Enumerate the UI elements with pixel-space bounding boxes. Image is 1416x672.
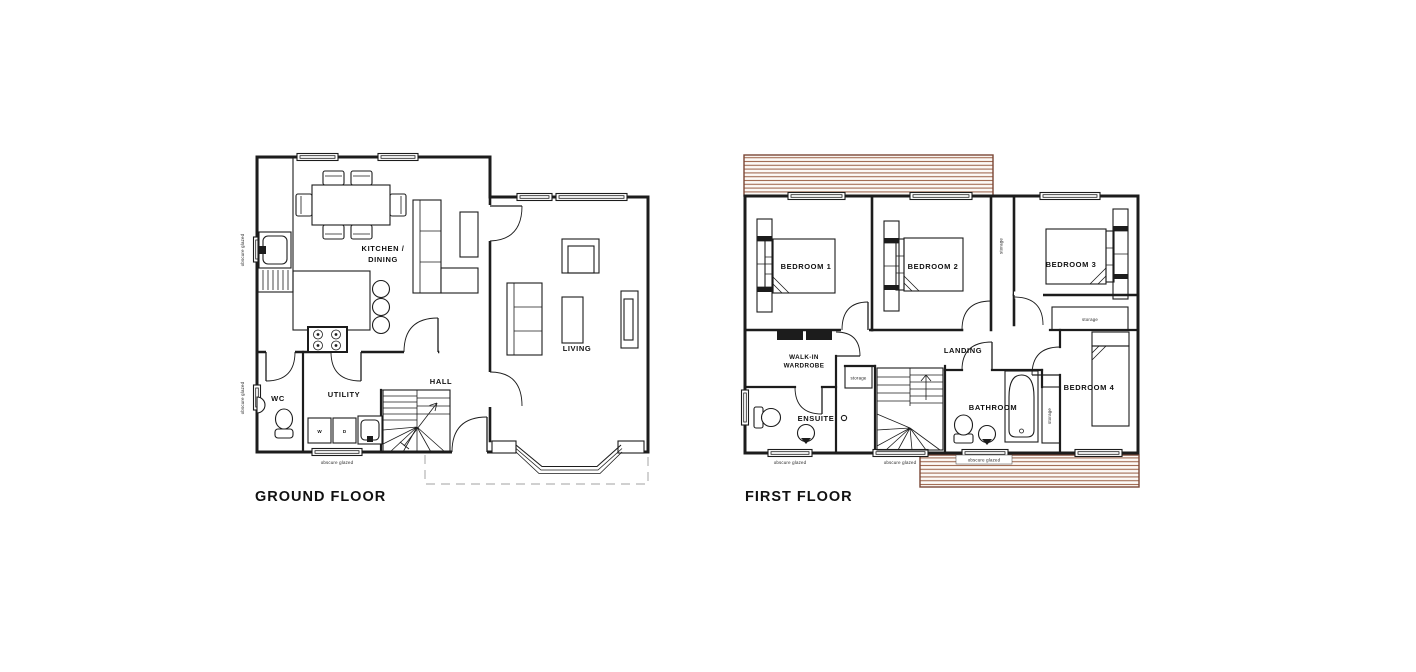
bedroom3-bed bbox=[1046, 209, 1128, 299]
wc-toilet bbox=[275, 409, 293, 438]
landing-label: LANDING bbox=[944, 346, 982, 355]
window bbox=[556, 194, 627, 201]
dining-table bbox=[296, 171, 406, 239]
storage-closet-bed3: storage bbox=[1052, 307, 1128, 330]
living-label: LIVING bbox=[563, 344, 592, 353]
obscure-glazed-note: obscure glazed bbox=[774, 460, 807, 465]
bedroom3-door bbox=[1014, 295, 1043, 325]
ground-floor-interior-walls bbox=[257, 197, 490, 452]
kitchen-sink bbox=[258, 232, 291, 290]
fireplace bbox=[621, 291, 638, 348]
wc-label: WC bbox=[271, 394, 285, 403]
living-sofa bbox=[507, 283, 542, 355]
utility-label: UTILITY bbox=[328, 390, 361, 399]
obscure-glazed-note: obscure glazed bbox=[240, 381, 245, 414]
window-obscure-glazed bbox=[742, 390, 749, 425]
bedroom1-label: BEDROOM 1 bbox=[781, 262, 832, 271]
kitchen-dining-label: KITCHEN / bbox=[362, 244, 405, 253]
living-armchair bbox=[562, 239, 599, 273]
bedroom2-label: BEDROOM 2 bbox=[908, 262, 959, 271]
bathroom-label: BATHROOM bbox=[969, 403, 1017, 412]
obscure-glazed-note: obscure glazed bbox=[884, 460, 917, 465]
window bbox=[910, 193, 972, 200]
first-floor-plan: storage storage storage storage bbox=[742, 155, 1140, 505]
coffee-table bbox=[562, 297, 583, 343]
window bbox=[517, 194, 552, 201]
window bbox=[1040, 193, 1100, 200]
roof-area-top bbox=[744, 155, 993, 196]
ground-floor-doors bbox=[266, 206, 522, 452]
kitchen-dining-label-2: DINING bbox=[368, 255, 398, 264]
front-door bbox=[452, 417, 487, 452]
wc-basin bbox=[257, 397, 265, 413]
kitchen-living-door bbox=[490, 206, 522, 241]
bay-window bbox=[492, 441, 644, 474]
bathroom-basin bbox=[979, 426, 996, 446]
ensuite-label: ENSUITE bbox=[798, 414, 835, 423]
window-obscure-glazed bbox=[312, 449, 362, 456]
bar-stools bbox=[373, 281, 390, 334]
svg-text:storage: storage bbox=[999, 238, 1004, 254]
washer-label: W bbox=[317, 429, 322, 434]
storage-closet-landing: storage bbox=[845, 366, 872, 388]
storage-closet-between-bedrooms: storage bbox=[999, 238, 1004, 254]
window bbox=[378, 154, 418, 161]
kitchen-sofa bbox=[413, 200, 478, 293]
bedroom2-door bbox=[962, 301, 991, 330]
wc-door bbox=[266, 352, 295, 381]
ensuite-door bbox=[795, 387, 822, 414]
roof-area-bottom bbox=[920, 455, 1139, 487]
window-obscure-glazed bbox=[768, 450, 812, 457]
ground-floor-staircase bbox=[383, 390, 450, 452]
kitchen-door bbox=[404, 318, 438, 352]
svg-text:storage: storage bbox=[1082, 317, 1098, 322]
hall-living-door bbox=[490, 372, 522, 406]
obscure-glazed-note: obscure glazed bbox=[321, 460, 354, 465]
bedroom3-label: BEDROOM 3 bbox=[1046, 260, 1097, 269]
utility-door bbox=[331, 352, 361, 381]
floor-plans-canvas: W D KITCHEN / DINING LIVING HALL UTILITY… bbox=[0, 0, 1416, 672]
window bbox=[1075, 450, 1122, 457]
ensuite-basin bbox=[798, 425, 815, 445]
walk-in-wardrobe-door bbox=[836, 332, 860, 356]
ground-floor-title: GROUND FLOOR bbox=[255, 489, 386, 505]
bedroom4-bed bbox=[1092, 332, 1129, 426]
hob bbox=[308, 327, 347, 352]
walk-in-wardrobe-units bbox=[777, 331, 832, 340]
bathroom-toilet bbox=[954, 415, 973, 443]
first-floor-staircase bbox=[877, 368, 943, 450]
window bbox=[788, 193, 845, 200]
bedroom4-label: BEDROOM 4 bbox=[1064, 383, 1115, 392]
first-floor-title: FIRST FLOOR bbox=[745, 489, 853, 505]
ground-floor-plan: W D KITCHEN / DINING LIVING HALL UTILITY… bbox=[240, 154, 648, 506]
ensuite-fitting-dot bbox=[841, 415, 846, 420]
obscure-glazed-note: obscure glazed bbox=[968, 458, 1001, 463]
ensuite-toilet bbox=[754, 407, 781, 428]
stair-direction-arrow bbox=[400, 403, 437, 449]
obscure-glazed-note: obscure glazed bbox=[240, 233, 245, 266]
svg-text:storage: storage bbox=[1047, 408, 1052, 424]
floor-plans-drawing: W D KITCHEN / DINING LIVING HALL UTILITY… bbox=[0, 0, 1416, 672]
walk-in-wardrobe-label: WALK-IN bbox=[789, 354, 819, 361]
walk-in-wardrobe-label-2: WARDROBE bbox=[784, 363, 825, 370]
hall-label: HALL bbox=[430, 377, 452, 386]
bedroom1-door bbox=[842, 302, 868, 330]
storage-closet-bathroom: storage bbox=[1042, 387, 1060, 443]
svg-text:storage: storage bbox=[850, 376, 866, 381]
utility-appliances: W D bbox=[308, 416, 382, 444]
window bbox=[297, 154, 338, 161]
